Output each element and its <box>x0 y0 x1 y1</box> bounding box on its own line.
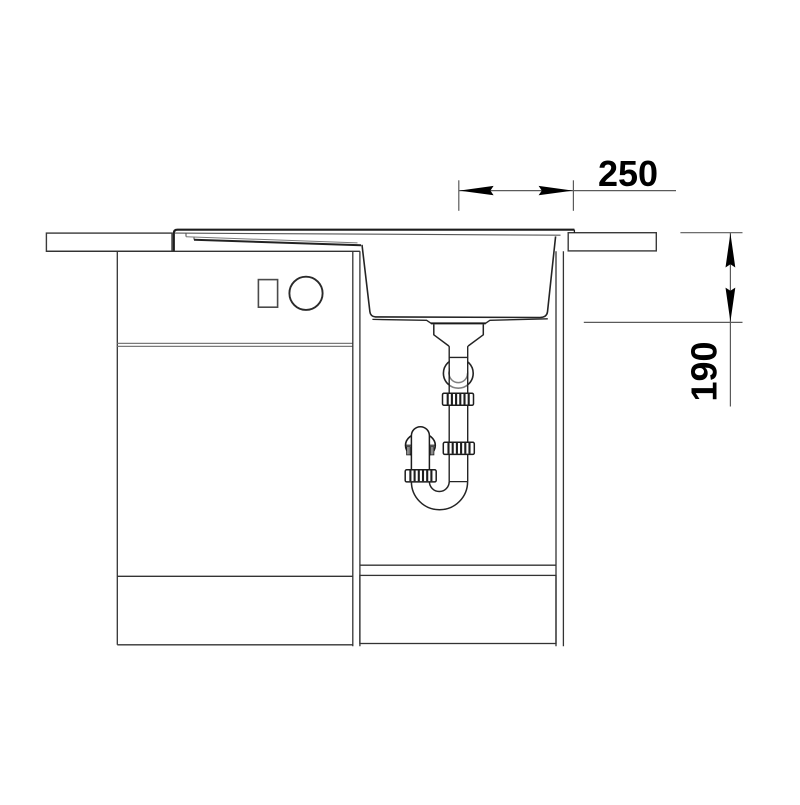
svg-text:190: 190 <box>684 341 725 401</box>
svg-text:250: 250 <box>598 153 658 194</box>
